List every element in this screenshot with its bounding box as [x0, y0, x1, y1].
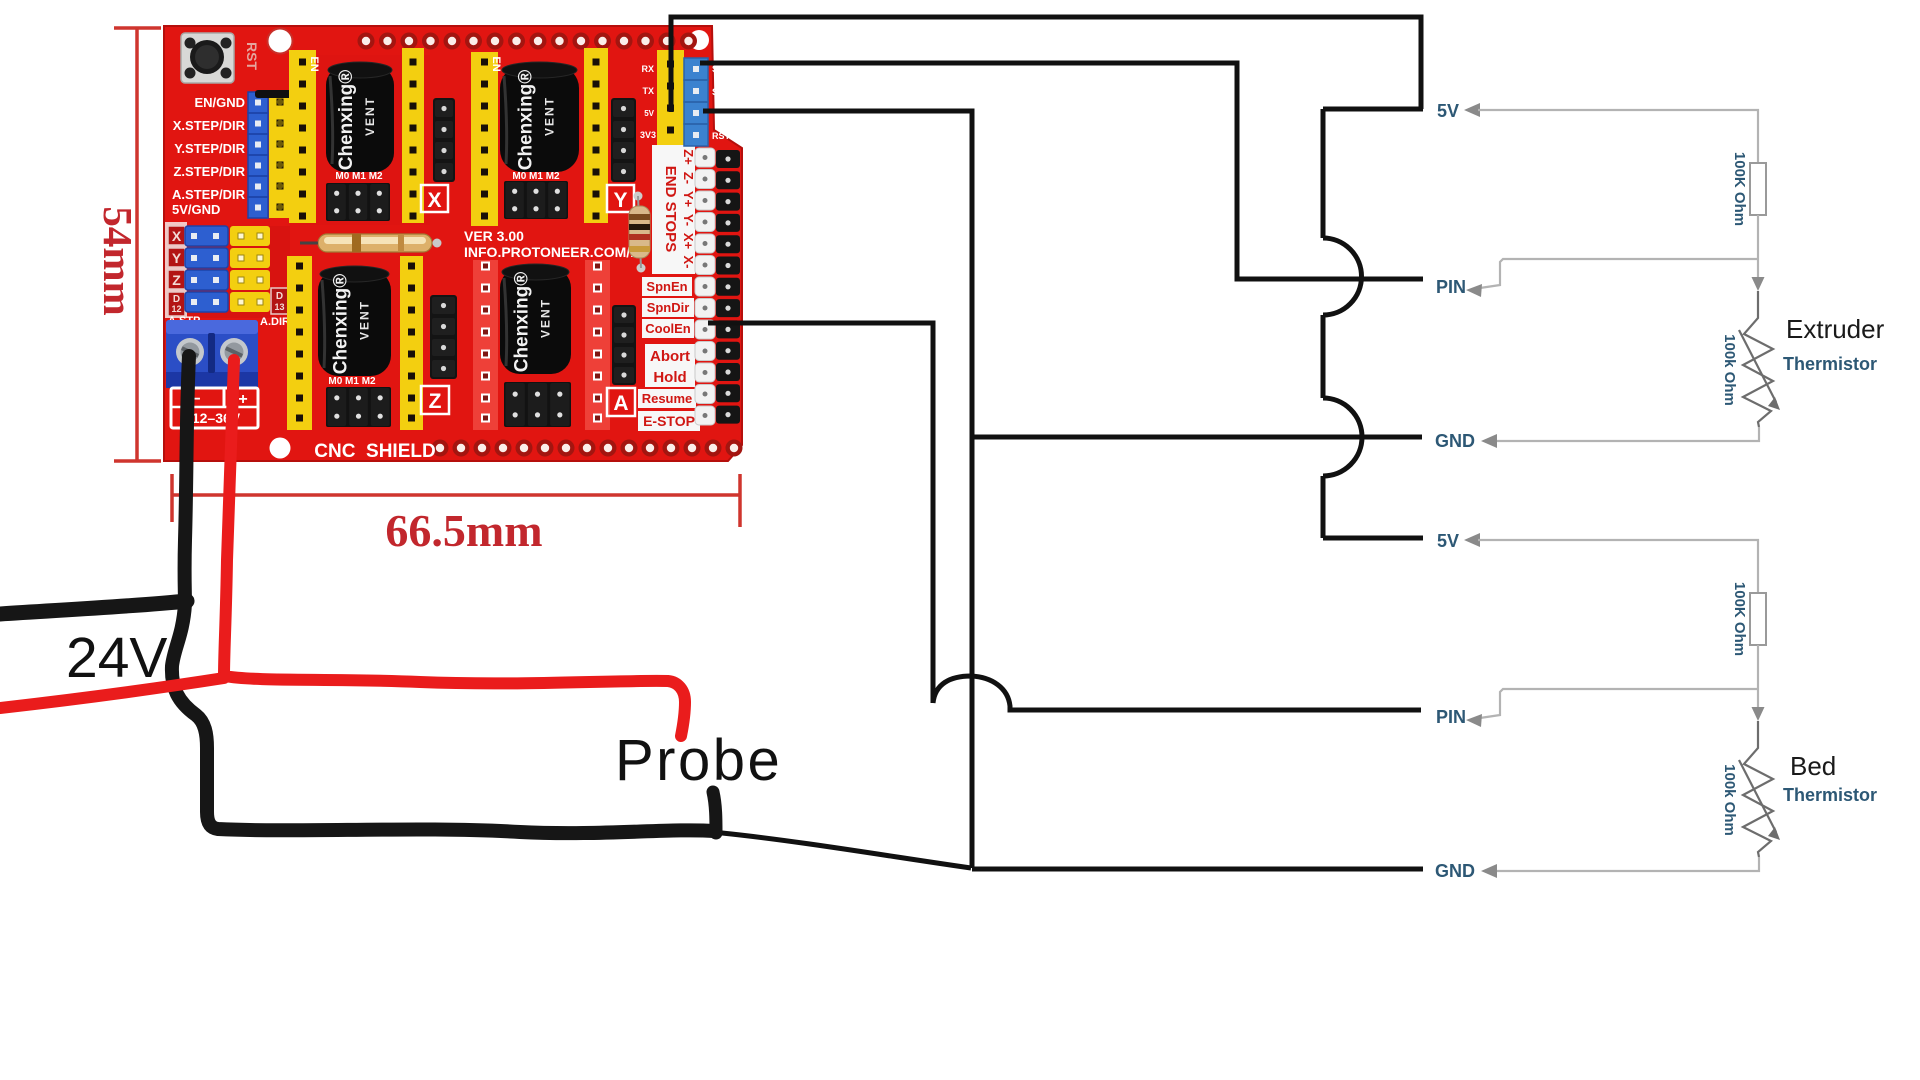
svg-text:Z.STEP/DIR: Z.STEP/DIR	[173, 164, 245, 179]
svg-text:3V3: 3V3	[640, 130, 656, 140]
svg-text:Z+: Z+	[681, 149, 696, 165]
svg-text:5V: 5V	[1437, 531, 1459, 551]
svg-text:Z-: Z-	[681, 172, 696, 184]
svg-text:100k Ohm: 100k Ohm	[1721, 764, 1738, 836]
svg-text:Y.STEP/DIR: Y.STEP/DIR	[174, 141, 245, 156]
svg-text:5V: 5V	[1437, 101, 1459, 121]
svg-text:CNC SHIELD: CNC SHIELD	[314, 441, 435, 462]
svg-text:A.STEP/DIR: A.STEP/DIR	[172, 187, 246, 202]
svg-text:END STOPS: END STOPS	[662, 166, 679, 252]
svg-text:Extruder: Extruder	[1786, 314, 1885, 344]
svg-text:Hold: Hold	[653, 369, 686, 386]
svg-text:Chenxing®: Chenxing®	[331, 274, 352, 375]
svg-text:13: 13	[274, 302, 284, 312]
svg-text:X.STEP/DIR: X.STEP/DIR	[173, 118, 246, 133]
svg-text:X: X	[427, 189, 441, 212]
svg-text:24V: 24V	[66, 626, 167, 690]
svg-text:A: A	[613, 392, 628, 415]
svg-text:Chenxing®: Chenxing®	[512, 272, 533, 373]
svg-text:Thermistor: Thermistor	[1783, 785, 1877, 805]
svg-text:Abort: Abort	[650, 348, 690, 365]
svg-text:Z: Z	[429, 390, 442, 413]
svg-text:EN: EN	[490, 56, 502, 71]
svg-text:54mm: 54mm	[95, 206, 141, 315]
svg-text:CoolEn: CoolEn	[645, 321, 691, 336]
svg-text:Z: Z	[172, 272, 181, 288]
svg-text:66.5mm: 66.5mm	[385, 505, 542, 556]
svg-text:Chenxing®: Chenxing®	[336, 70, 357, 171]
svg-text:M0 M1 M2: M0 M1 M2	[328, 376, 376, 387]
svg-text:X-: X-	[681, 256, 696, 269]
svg-text:X: X	[172, 228, 182, 244]
svg-text:+: +	[238, 391, 247, 408]
svg-text:RST: RST	[712, 131, 731, 141]
svg-text:RST: RST	[244, 42, 260, 70]
svg-text:Bed: Bed	[1790, 751, 1836, 781]
svg-text:12: 12	[171, 304, 181, 314]
svg-text:M0 M1 M2: M0 M1 M2	[335, 171, 383, 182]
svg-text:5V: 5V	[644, 109, 654, 118]
svg-text:VENT: VENT	[363, 96, 377, 136]
svg-text:Resume: Resume	[642, 391, 693, 406]
svg-text:VENT: VENT	[358, 300, 372, 340]
svg-text:Y: Y	[613, 189, 627, 212]
svg-text:EN/GND: EN/GND	[194, 95, 245, 110]
svg-text:100K Ohm: 100K Ohm	[1731, 152, 1748, 226]
svg-text:RX: RX	[641, 64, 654, 74]
svg-text:Probe: Probe	[615, 728, 782, 793]
svg-text:Y+: Y+	[681, 191, 696, 208]
svg-text:PIN: PIN	[1436, 707, 1466, 727]
svg-text:VENT: VENT	[539, 298, 553, 338]
svg-text:VENT: VENT	[543, 96, 557, 136]
svg-text:EN: EN	[308, 56, 320, 71]
svg-text:Y: Y	[172, 250, 182, 266]
svg-text:SpnEn: SpnEn	[646, 279, 687, 294]
svg-text:A.DIR: A.DIR	[260, 316, 290, 328]
svg-text:X+: X+	[681, 233, 696, 250]
svg-text:GND: GND	[1435, 431, 1475, 451]
svg-text:SpnDir: SpnDir	[647, 300, 690, 315]
svg-text:VER 3.00: VER 3.00	[464, 228, 524, 244]
svg-text:Y-: Y-	[681, 214, 696, 226]
svg-text:100k Ohm: 100k Ohm	[1721, 334, 1738, 406]
svg-text:100K Ohm: 100K Ohm	[1731, 582, 1748, 656]
svg-text:M0 M1 M2: M0 M1 M2	[512, 171, 560, 182]
svg-text:TX: TX	[642, 86, 654, 96]
svg-text:PIN: PIN	[1436, 277, 1466, 297]
svg-text:INFO.PROTONEER.COM/1: INFO.PROTONEER.COM/1	[464, 244, 638, 260]
svg-text:SDA: SDA	[712, 87, 732, 97]
svg-text:Thermistor: Thermistor	[1783, 354, 1877, 374]
svg-text:5V/GND: 5V/GND	[172, 202, 220, 217]
svg-text:GND: GND	[1435, 861, 1475, 881]
svg-text:Chenxing®: Chenxing®	[516, 70, 537, 171]
svg-text:E-STOP: E-STOP	[643, 413, 695, 429]
svg-text:D: D	[276, 291, 283, 302]
